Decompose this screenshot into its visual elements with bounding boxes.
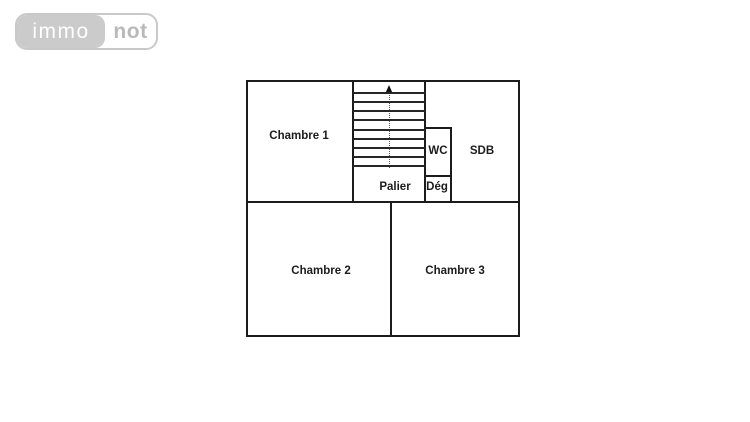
logo-not-segment: not	[105, 15, 156, 48]
room-label-chambre2: Chambre 2	[291, 265, 350, 277]
step-line	[353, 129, 425, 131]
room-label-palier: Palier	[379, 181, 410, 193]
logo-not-text: not	[113, 20, 147, 44]
logo-immo-segment: immo	[17, 15, 105, 48]
step-line	[353, 156, 425, 158]
step-line	[353, 147, 425, 149]
logo-immo-text: immo	[32, 20, 89, 44]
room-label-wc: WC	[428, 145, 447, 157]
step-line	[353, 165, 425, 167]
floor-plan: Chambre 1 WC SDB Palier Dég Chambre 2 Ch…	[246, 80, 520, 337]
step-line	[353, 119, 425, 121]
page-canvas: { "logo": { "part1": "immo", "part2": "n…	[0, 0, 750, 422]
wall-wc-right	[450, 127, 452, 203]
wall-wc-deg-divider	[424, 175, 452, 177]
immonot-logo: immo not	[15, 13, 158, 50]
wall-wc-top	[424, 127, 452, 129]
step-line	[353, 110, 425, 112]
wall-chambre2-chambre3-divider	[390, 203, 392, 335]
room-label-sdb: SDB	[470, 145, 494, 157]
step-line	[353, 101, 425, 103]
room-label-chambre1: Chambre 1	[269, 130, 328, 142]
step-line	[353, 92, 425, 94]
step-line	[353, 138, 425, 140]
room-label-chambre3: Chambre 3	[425, 265, 484, 277]
room-label-deg: Dég	[426, 181, 448, 193]
